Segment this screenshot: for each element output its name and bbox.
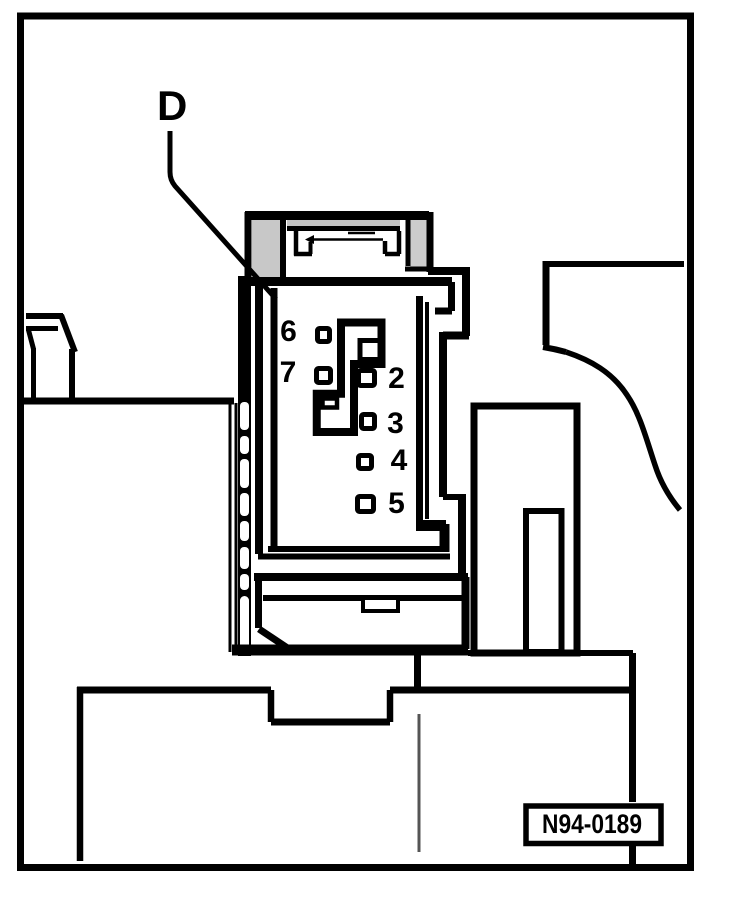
svg-text:N94-0189: N94-0189	[542, 809, 642, 839]
svg-text:D: D	[157, 82, 187, 129]
svg-text:7: 7	[280, 356, 297, 389]
svg-text:6: 6	[280, 315, 297, 348]
svg-text:2: 2	[388, 362, 405, 395]
svg-text:3: 3	[387, 407, 404, 440]
svg-text:5: 5	[388, 487, 405, 520]
svg-text:4: 4	[391, 444, 408, 477]
